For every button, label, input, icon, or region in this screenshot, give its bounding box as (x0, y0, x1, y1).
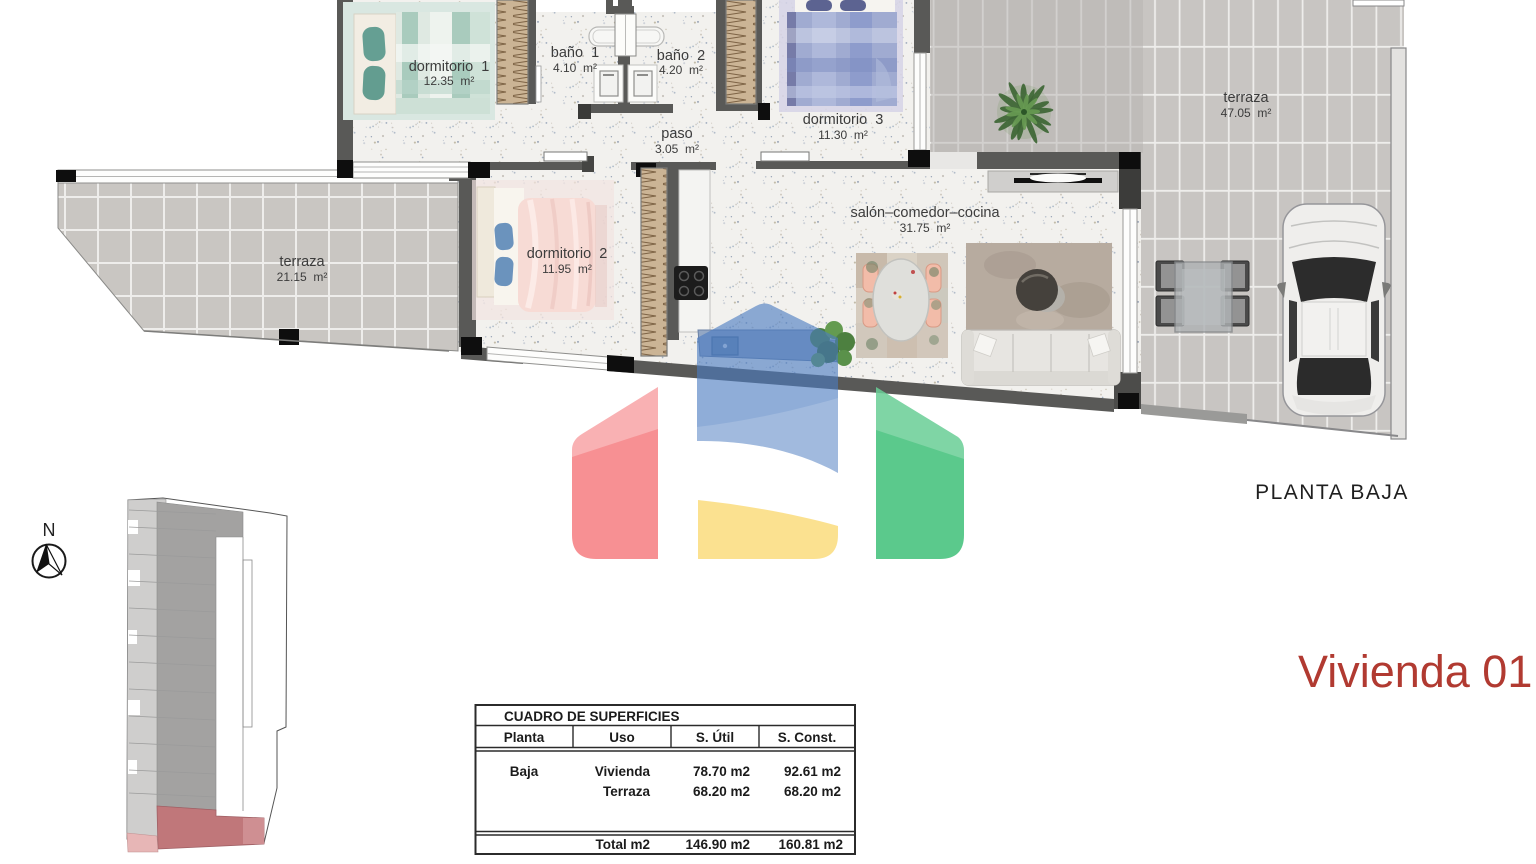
svg-text:160.81 m2: 160.81 m2 (778, 837, 843, 852)
svg-text:146.90 m2: 146.90 m2 (685, 837, 750, 852)
svg-text:Uso: Uso (609, 730, 635, 745)
svg-text:3.05 m²: 3.05 m² (655, 142, 699, 156)
svg-text:68.20 m2: 68.20 m2 (693, 784, 750, 799)
svg-text:12.35 m²: 12.35 m² (424, 74, 475, 88)
svg-text:Baja: Baja (510, 764, 539, 779)
svg-text:68.20 m2: 68.20 m2 (784, 784, 841, 799)
svg-text:dormitorio 2: dormitorio 2 (527, 246, 608, 262)
svg-text:4.20 m²: 4.20 m² (659, 63, 703, 77)
svg-text:PLANTA BAJA: PLANTA BAJA (1255, 481, 1409, 504)
svg-text:Planta: Planta (504, 730, 545, 745)
svg-text:dormitorio 1: dormitorio 1 (409, 59, 490, 75)
svg-text:terraza: terraza (279, 254, 325, 270)
svg-text:baño 1: baño 1 (551, 45, 599, 61)
svg-text:dormitorio 3: dormitorio 3 (803, 112, 884, 128)
svg-text:78.70 m2: 78.70 m2 (693, 764, 750, 779)
svg-text:Total m2: Total m2 (595, 837, 650, 852)
svg-text:salón–comedor–cocina: salón–comedor–cocina (850, 205, 1000, 221)
svg-text:47.05 m²: 47.05 m² (1221, 106, 1272, 120)
svg-text:21.15 m²: 21.15 m² (277, 270, 328, 284)
svg-text:11.95 m²: 11.95 m² (542, 262, 592, 276)
svg-text:baño 2: baño 2 (657, 48, 705, 64)
svg-text:paso: paso (661, 126, 692, 142)
svg-text:11.30 m²: 11.30 m² (818, 128, 868, 142)
svg-text:terraza: terraza (1223, 90, 1269, 106)
svg-text:4.10 m²: 4.10 m² (553, 61, 597, 75)
svg-text:92.61 m2: 92.61 m2 (784, 764, 841, 779)
svg-text:S. Útil: S. Útil (696, 730, 734, 745)
svg-text:31.75 m²: 31.75 m² (900, 221, 951, 235)
svg-text:CUADRO DE SUPERFICIES: CUADRO DE SUPERFICIES (504, 709, 680, 724)
svg-text:Vivienda 01: Vivienda 01 (1298, 646, 1532, 697)
svg-text:N: N (43, 520, 56, 540)
svg-text:Vivienda: Vivienda (595, 764, 651, 779)
svg-text:Terraza: Terraza (603, 784, 651, 799)
svg-text:S. Const.: S. Const. (778, 730, 837, 745)
